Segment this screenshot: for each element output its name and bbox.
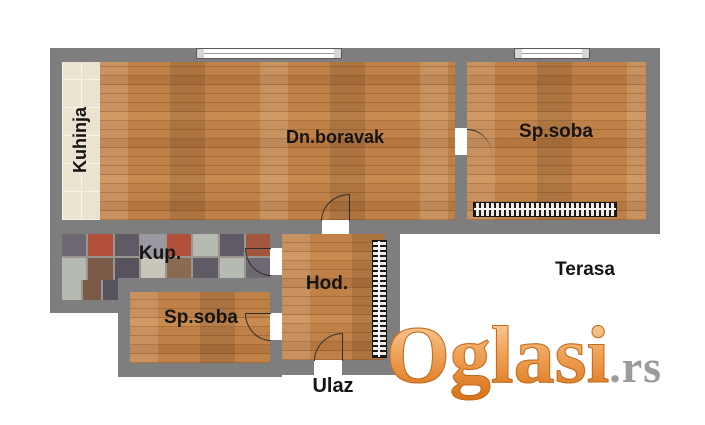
kitchen-label: Kuhinja: [71, 80, 91, 200]
terrace-label: Terasa: [540, 260, 630, 281]
bathroom-tile: [62, 280, 81, 302]
radiator-hallway-icon: [372, 240, 387, 358]
wall-bedroom-bottom-top: [118, 278, 282, 292]
watermark: Oglasi.rs: [386, 314, 662, 396]
entrance-label: Ulaz: [300, 375, 366, 397]
door-gap-entrance: [314, 360, 342, 375]
door-gap-living-hall: [322, 220, 349, 234]
hallway-label: Hod.: [287, 274, 367, 295]
door-gap-bedroom-bottom: [270, 313, 282, 340]
bathroom-tile: [88, 234, 112, 256]
bathroom-tile: [62, 258, 86, 280]
wall-middle-horizontal: [50, 220, 660, 234]
door-gap-bathroom: [270, 248, 282, 275]
window-living: [196, 48, 342, 59]
bathroom-tile: [220, 234, 244, 256]
wall-left: [50, 48, 62, 312]
bathroom-tile: [88, 258, 112, 280]
floor-plan: Kuhinja Dn.boravak Sp.soba Kup. Sp.soba …: [0, 0, 705, 425]
bedroom-top-label: Sp.soba: [486, 122, 626, 143]
bathroom-label: Kup.: [120, 244, 200, 265]
bathroom-tile: [220, 258, 244, 280]
door-gap-living-bedroom: [455, 128, 467, 155]
wall-right: [646, 48, 660, 232]
watermark-brand-text: Oglasi: [386, 309, 609, 400]
radiator-bedroom-icon: [473, 202, 617, 217]
living-label: Dn.boravak: [250, 128, 420, 148]
room-bathroom-extension: [62, 280, 122, 302]
wall-bedroom-bottom-bottom: [118, 363, 282, 377]
bathroom-tile: [62, 234, 86, 256]
window-bedroom-top: [514, 48, 590, 59]
bathroom-tile: [83, 280, 102, 302]
bedroom-bottom-label: Sp.soba: [131, 308, 271, 329]
watermark-tld-text: .rs: [609, 341, 662, 392]
